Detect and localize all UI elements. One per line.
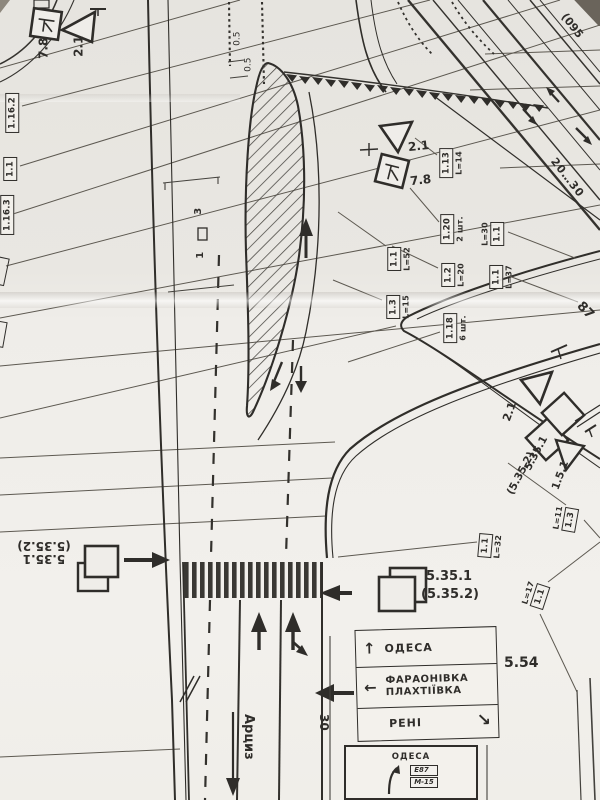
place-arciz: Арциз: [241, 714, 255, 760]
bottom-direction-board: ОДЕСА Е87 М-15: [344, 745, 478, 800]
marking-note: 6 шт.: [458, 315, 467, 341]
marking-label: L=11 1.3: [551, 505, 578, 533]
marking-code: 1.16.3: [0, 195, 14, 235]
direction-table-sign: ↑ ОДЕСА ← ФАРАОНІВКА ПЛАХТІЇВКА РЕНІ ↘: [354, 626, 499, 742]
bottom-left-sign-line2: (5.35.2): [8, 540, 80, 553]
dir-row-reni: РЕНІ ↘: [358, 705, 499, 739]
hatched-island: [246, 63, 305, 417]
marking-label: 1.1 L=37: [489, 265, 513, 289]
board-title: ОДЕСА: [346, 752, 476, 762]
marking-label: 1.13 L=14: [439, 148, 463, 178]
marking-code: 1.3: [386, 295, 400, 319]
marking-note: L=15: [401, 295, 410, 319]
dir-row-faraonivka: ← ФАРАОНІВКА ПЛАХТІЇВКА: [357, 664, 498, 709]
marking-code: 1.1: [477, 533, 493, 558]
sign-label-21-mid: 2.1: [407, 139, 429, 154]
route-badge-m15: М-15: [410, 777, 438, 788]
crosswalk-sign-label2: (5.35.2): [421, 588, 479, 602]
marking-label: 1.1 L=52: [387, 247, 411, 271]
sign-crosswalk-squares: [320, 568, 426, 611]
marking-code: 1.20: [440, 214, 454, 244]
dir-city-two-lines: ФАРАОНІВКА ПЛАХТІЇВКА: [385, 672, 469, 699]
marking-code: 1.1: [387, 247, 401, 271]
marking-code: 1.13: [439, 148, 453, 178]
dim-lane1: 1: [196, 252, 207, 259]
marking-note: L=20: [456, 263, 465, 287]
dir-city-line2: ПЛАХТІЇВКА: [386, 685, 469, 700]
bottom-left-sign-line1: 5.35.1: [8, 553, 80, 566]
marking-code: 1.18: [443, 313, 457, 343]
marking-code: 1.16.2: [5, 93, 19, 133]
bottom-left-sign-label: 5.35.1 (5.35.2): [8, 540, 80, 565]
dir-city: РЕНІ: [389, 716, 422, 730]
crosswalk: [184, 562, 321, 598]
sign-top-left: [30, 0, 106, 42]
marking-label: 1.18 6 шт.: [443, 313, 467, 343]
dim-05-b: 0.5: [244, 58, 253, 72]
dir-city: ОДЕСА: [384, 640, 433, 654]
route-badge-e87: Е87: [410, 765, 438, 776]
board-curved-arrow-icon: [384, 765, 402, 795]
marking-label: 1.16.2: [5, 93, 19, 133]
sign-label-78: 7.8: [37, 38, 50, 59]
arrow-down-right-icon: ↘: [477, 710, 492, 730]
marking-code: 1.2: [441, 263, 455, 287]
marking-label: 1.16.3: [0, 195, 14, 235]
dir-board-code: 5.54: [504, 656, 539, 671]
marking-label: 1.3 L=15: [386, 295, 410, 319]
marking-label: L=30 1.1: [480, 222, 504, 246]
marking-label: 1.20 2 шт.: [440, 214, 464, 244]
marking-note: L=52: [402, 247, 411, 271]
dim-05-a: 0.5: [233, 32, 242, 46]
sign-label-78-mid: 7.8: [409, 173, 431, 188]
marking-code: 1.1: [490, 222, 504, 246]
marking-label: 1.1: [3, 157, 17, 181]
crosswalk-sign-label1: 5.35.1: [426, 570, 472, 584]
scanned-road-plan: 7.8 2.1 2.1 7.8 2.1 5.35.1 (5.35.2) 1.5.…: [0, 0, 600, 800]
marking-note: 2 шт.: [455, 216, 464, 242]
arrow-left-icon: ←: [364, 678, 377, 696]
marking-label: 1.1 L=32: [477, 533, 502, 559]
dir-row-odesa: ↑ ОДЕСА: [355, 627, 496, 668]
arrow-up-icon: ↑: [363, 639, 376, 657]
marking-note: L=30: [480, 222, 489, 246]
sign-bottom-left-squares: [78, 546, 170, 591]
marking-label: 1.2 L=20: [441, 263, 465, 287]
dim-lane3: 3: [194, 208, 205, 215]
marking-note: L=14: [454, 151, 463, 175]
sign-label-21: 2.1: [72, 36, 85, 57]
sign-top-mid: [360, 122, 412, 188]
marking-note: L=37: [504, 265, 513, 289]
highway-arrows: [523, 87, 592, 145]
plan-linework: [0, 0, 600, 800]
marking-code: 1.1: [3, 157, 17, 181]
marking-code: 1.1: [489, 265, 503, 289]
dim-30: 30: [317, 714, 330, 731]
merge-teeth: [284, 72, 548, 112]
